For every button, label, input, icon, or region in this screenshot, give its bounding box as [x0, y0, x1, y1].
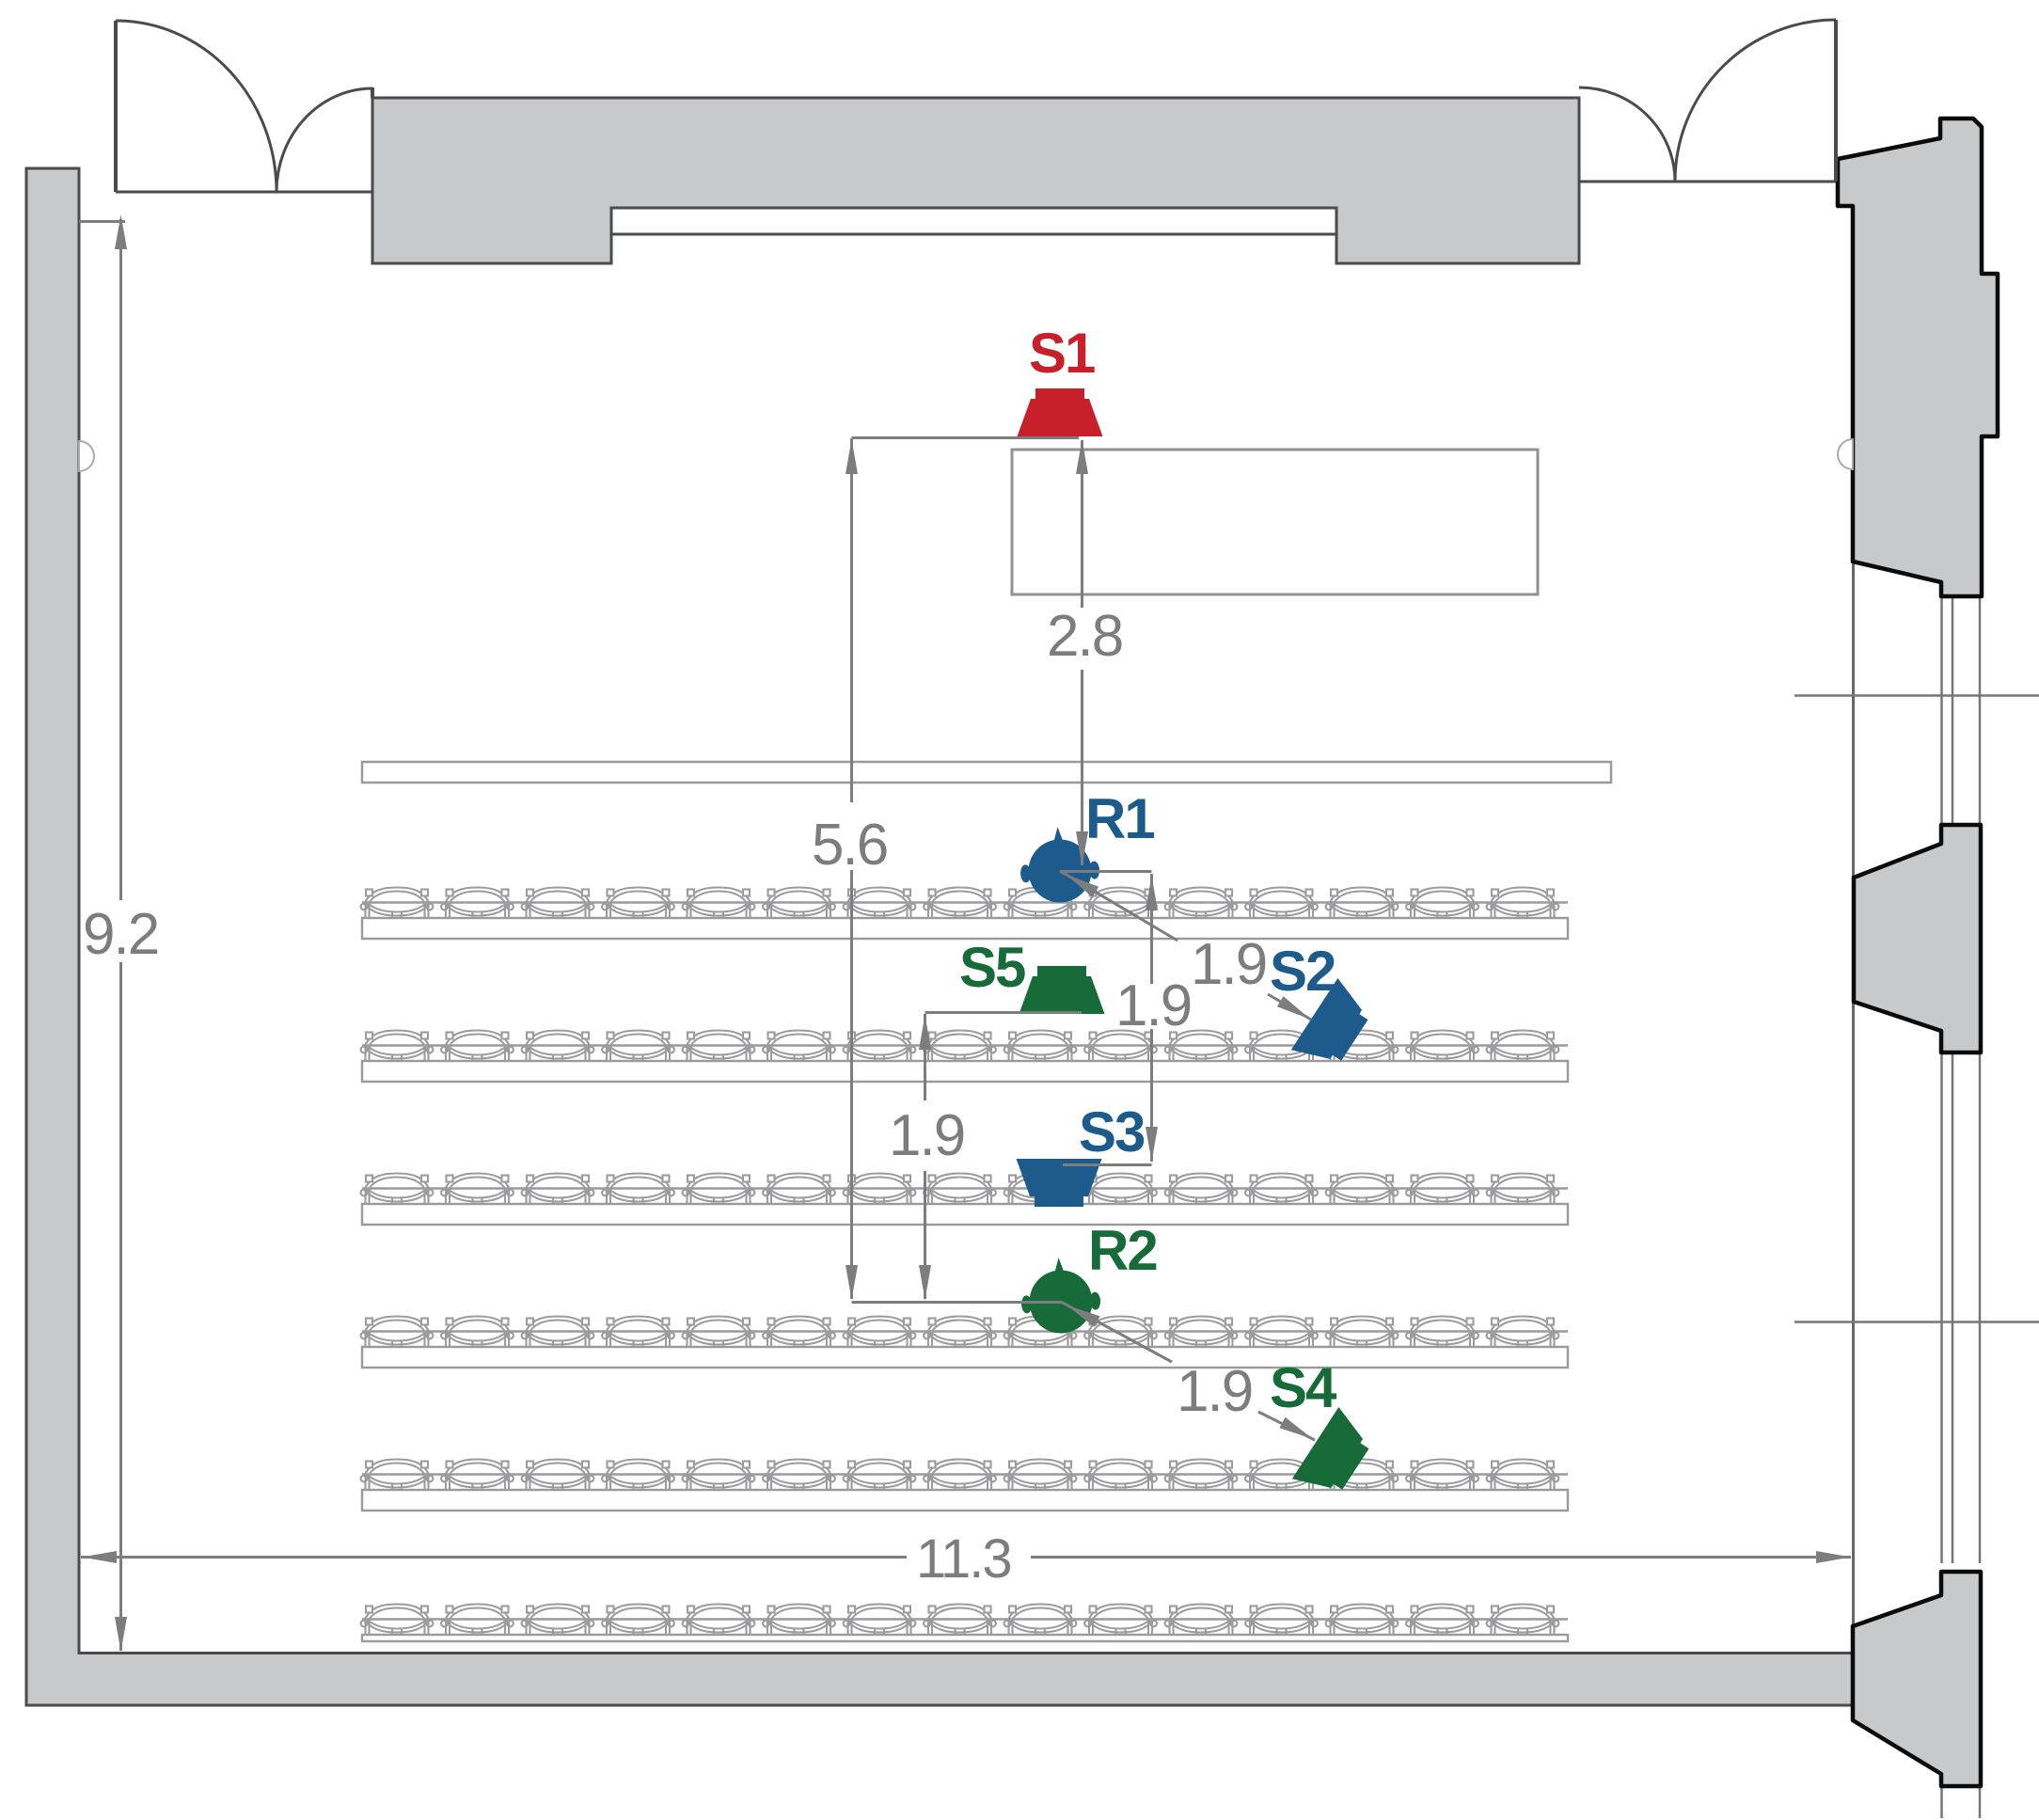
svg-text:R2: R2	[1088, 1219, 1157, 1282]
svg-text:2.8: 2.8	[1047, 604, 1122, 669]
svg-text:S2: S2	[1270, 940, 1335, 1003]
svg-text:1.9: 1.9	[1115, 973, 1191, 1038]
svg-text:R1: R1	[1085, 787, 1154, 850]
svg-text:S3: S3	[1079, 1100, 1145, 1163]
svg-text:S4: S4	[1270, 1356, 1337, 1419]
svg-text:1.9: 1.9	[1191, 932, 1266, 997]
svg-text:S5: S5	[959, 936, 1025, 999]
svg-text:1.9: 1.9	[889, 1103, 964, 1168]
svg-text:5.6: 5.6	[812, 813, 887, 878]
svg-text:1.9: 1.9	[1177, 1359, 1252, 1424]
svg-text:9.2: 9.2	[83, 902, 158, 967]
svg-text:S1: S1	[1029, 322, 1095, 385]
svg-text:11.3: 11.3	[916, 1528, 1011, 1590]
